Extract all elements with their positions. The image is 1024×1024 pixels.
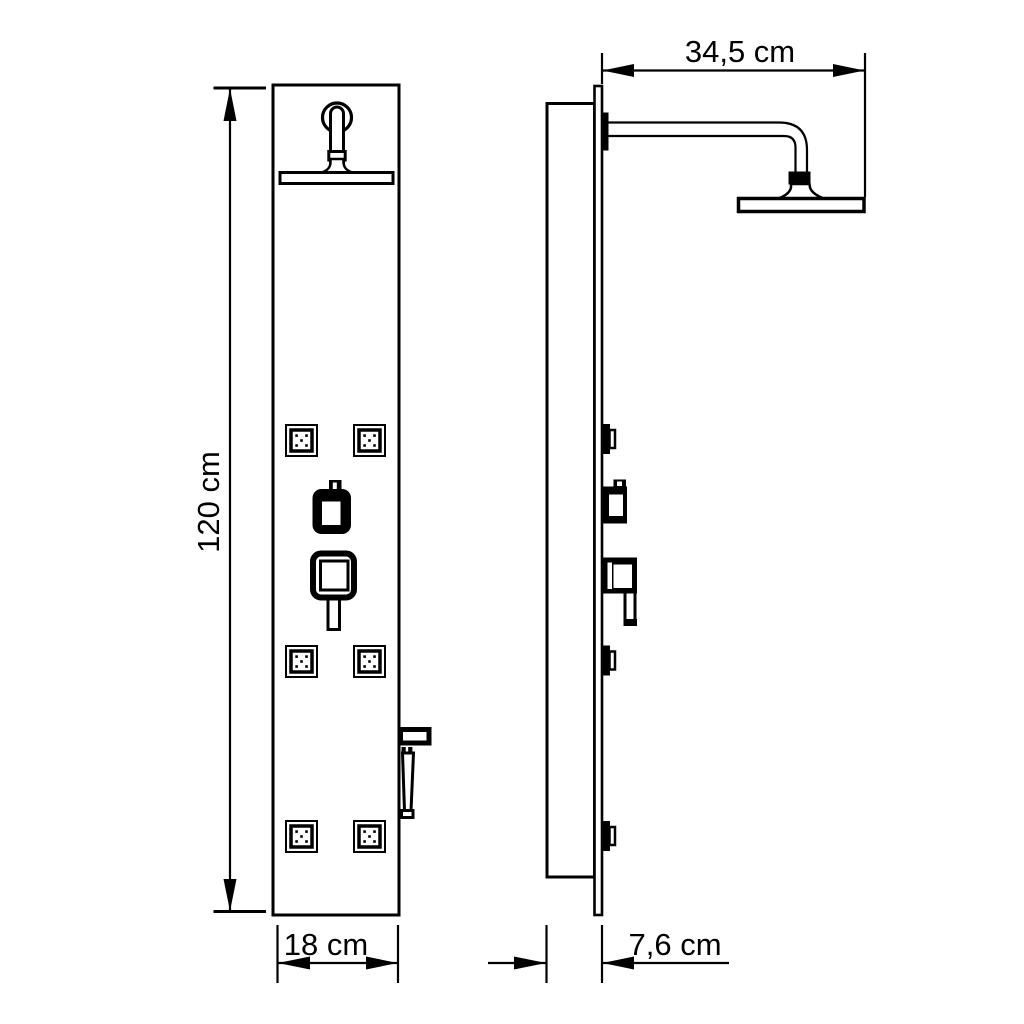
shower-head-side: [739, 199, 865, 212]
shower-panel-dimension-diagram: 120 cm 18 cm 34,5 cm 7,6 cm: [0, 0, 1024, 1024]
dim-depth-label: 7,6 cm: [628, 927, 721, 962]
body-jet-icon: [354, 821, 385, 852]
body-jet-icon: [286, 425, 317, 456]
pipe-nut-side: [789, 172, 811, 185]
diagram-canvas: 120 cm 18 cm 34,5 cm 7,6 cm: [0, 0, 1024, 1024]
glass-front-plate: [595, 86, 603, 915]
background: [0, 0, 1024, 1024]
dim-arm-label: 34,5 cm: [685, 34, 795, 69]
shower-head-edge: [280, 173, 393, 184]
panel-body-profile: [547, 104, 595, 878]
body-jet-icon: [354, 646, 385, 677]
dim-width-label: 18 cm: [284, 927, 368, 962]
body-jet-icon: [286, 646, 317, 677]
dim-height-label: 120 cm: [191, 451, 226, 553]
arm-wall-flange-icon: [602, 113, 609, 151]
hand-shower-holder: [401, 730, 430, 744]
body-jet-icon: [286, 821, 317, 852]
body-jet-icon: [354, 425, 385, 456]
hand-shower-handle: [403, 753, 414, 811]
